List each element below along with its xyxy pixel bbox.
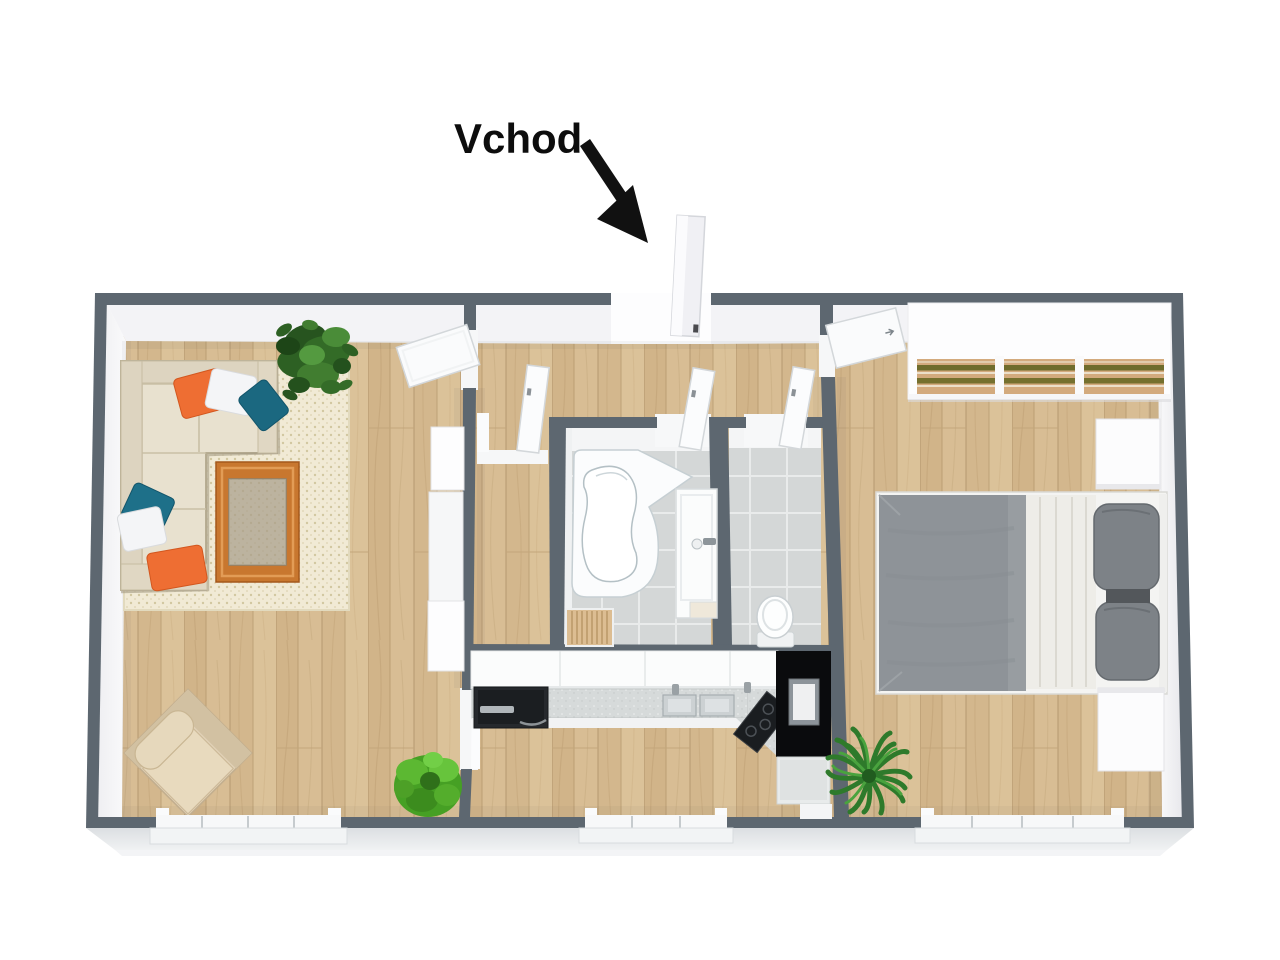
svg-text:Vchod: Vchod: [454, 115, 582, 162]
